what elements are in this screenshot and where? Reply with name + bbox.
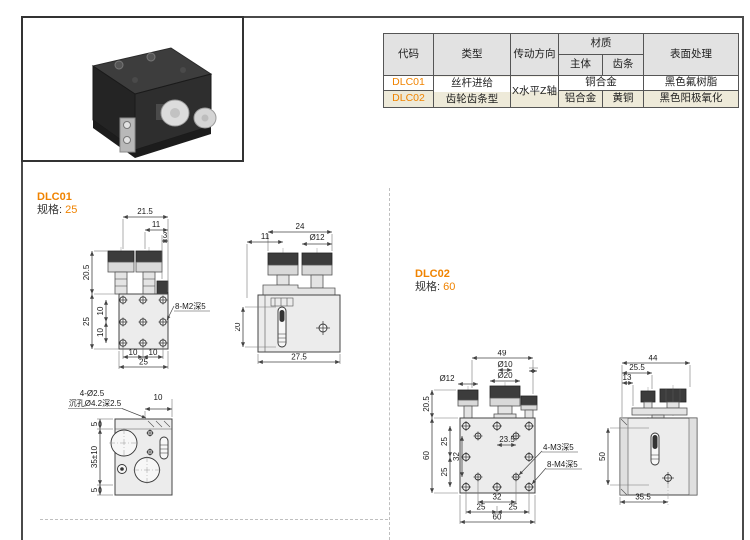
- dim-text: 25: [509, 503, 518, 512]
- dlc02-front-dimensions: 49 Ø10 Ø20 Ø12 20.5 60 25 25 32 23.5: [422, 350, 582, 524]
- dim-text: 35.5: [635, 493, 651, 502]
- dim-text: Ø10: [497, 360, 513, 369]
- drawing-dlc01-bottom: 4-Ø2.5 沉孔Ø4.2深2.5 10 5 35±10 5: [40, 385, 195, 520]
- cell-surface-dlc02: 黑色阳极氧化: [644, 91, 739, 108]
- dim-text: 5: [90, 487, 99, 492]
- dlc02-spec-label: 规格:: [415, 281, 440, 293]
- spec-table: 代码 类型 传动方向 材质 表面处理 主体 齿条 DLC01 丝杆进给 齿轮齿条…: [383, 33, 739, 108]
- hole-callout-m3: 4-M3深5: [543, 443, 574, 452]
- section-dlc02-title: DLC02 规格: 60: [415, 268, 455, 294]
- dim-text: 10: [129, 348, 138, 357]
- dim-text: 50: [598, 452, 607, 461]
- dim-text: 32: [493, 493, 502, 502]
- hole-callout-m4: 8-M4深5: [547, 460, 578, 469]
- col-header-material-body: 主体: [559, 55, 603, 76]
- cell-code-dlc01: DLC01: [384, 76, 434, 91]
- col-header-type: 类型: [434, 34, 511, 76]
- cell-direction: X水平Z轴: [511, 76, 559, 108]
- dlc02-front-geometry: [458, 382, 537, 493]
- dim-text: 13: [623, 373, 632, 382]
- col-header-material-rack: 齿条: [603, 55, 644, 76]
- dim-text: 32: [452, 452, 461, 461]
- dlc02-side-geometry: [620, 385, 697, 495]
- dim-text: 49: [498, 350, 507, 358]
- dim-text: 25: [82, 317, 91, 326]
- cell-code-dlc02: DLC02: [384, 91, 434, 108]
- dim-text: 20.5: [422, 396, 431, 412]
- drawing-dlc01-front: 21.5 11 3 20.5 25 10 10 10 10: [55, 205, 230, 375]
- dim-text: Ø12: [309, 233, 325, 242]
- cell-material-body-dlc02: 铝合金: [559, 91, 603, 108]
- dim-text: 3: [163, 231, 168, 240]
- dim-text: 35±10: [90, 445, 99, 468]
- dim-text: 24: [296, 222, 305, 231]
- dim-text: 10: [96, 306, 105, 315]
- dim-text: 25: [440, 467, 449, 476]
- product-photo-box: [21, 16, 244, 162]
- hole-callout: 4-Ø2.5: [80, 389, 105, 398]
- type-line-2: 齿轮齿条型: [434, 91, 510, 107]
- dim-text: 21.5: [137, 207, 153, 216]
- col-header-direction: 传动方向: [511, 34, 559, 76]
- stage-cube-illustration: [93, 48, 216, 158]
- mounting-bracket: [120, 118, 135, 152]
- dlc02-spec-value: 60: [443, 281, 455, 293]
- cell-material-dlc01: 铜合金: [559, 76, 644, 91]
- drawing-dlc02-front: 49 Ø10 Ø20 Ø12 20.5 60 25 25 32 23.5: [420, 350, 605, 540]
- table-row: DLC01 丝杆进给 齿轮齿条型 X水平Z轴 铜合金 黑色氟树脂: [384, 76, 739, 91]
- adjustment-knob-small: [194, 108, 216, 128]
- counterbore-callout: 沉孔Ø4.2深2.5: [69, 399, 122, 408]
- dim-text: 27.5: [291, 353, 307, 362]
- drawing-dlc02-side: 44 25.5 13 50 35.5: [595, 355, 745, 510]
- dlc02-spec: 规格: 60: [415, 281, 455, 294]
- dim-text: 10: [149, 348, 158, 357]
- dim-text: 20: [235, 322, 242, 331]
- dim-text: Ø12: [439, 374, 455, 383]
- cell-surface-dlc01: 黑色氟树脂: [644, 76, 739, 91]
- dim-text: 11: [261, 232, 270, 241]
- hole-callout: 8-M2深5: [175, 302, 206, 311]
- dlc01-front-geometry: [108, 247, 168, 349]
- dim-text: 25: [440, 437, 449, 446]
- dim-text: Ø20: [497, 371, 513, 380]
- dim-text: 25.5: [629, 363, 645, 372]
- dim-text: 5: [90, 421, 99, 426]
- cell-type: 丝杆进给 齿轮齿条型: [434, 76, 511, 108]
- dim-text: 60: [422, 451, 431, 460]
- dim-text: 20.5: [82, 264, 91, 280]
- dim-text: 60: [493, 513, 502, 522]
- dim-text: 25: [477, 503, 486, 512]
- col-header-surface: 表面处理: [644, 34, 739, 76]
- dlc01-code: DLC01: [37, 191, 77, 204]
- col-header-material: 材质: [559, 34, 644, 55]
- datasheet-page: 代码 类型 传动方向 材质 表面处理 主体 齿条 DLC01 丝杆进给 齿轮齿条…: [0, 0, 750, 540]
- cell-material-rack-dlc02: 黄铜: [603, 91, 644, 108]
- dim-text: 11: [152, 220, 161, 229]
- dim-text: 25: [139, 358, 148, 367]
- dlc01-side-geometry: [258, 248, 340, 352]
- drawing-dlc01-side: 24 11 Ø12 20 27.5: [235, 210, 350, 368]
- dim-text: 44: [649, 355, 658, 363]
- dlc01-bottom-geometry: [109, 419, 172, 495]
- dim-text: 10: [96, 328, 105, 337]
- col-header-code: 代码: [384, 34, 434, 76]
- dim-text: 23.5: [499, 435, 515, 444]
- dim-text: 10: [154, 393, 163, 402]
- dashed-divider-vertical: [389, 188, 390, 540]
- product-photo: [23, 18, 242, 160]
- dlc02-code: DLC02: [415, 268, 455, 281]
- type-line-1: 丝杆进给: [434, 76, 510, 91]
